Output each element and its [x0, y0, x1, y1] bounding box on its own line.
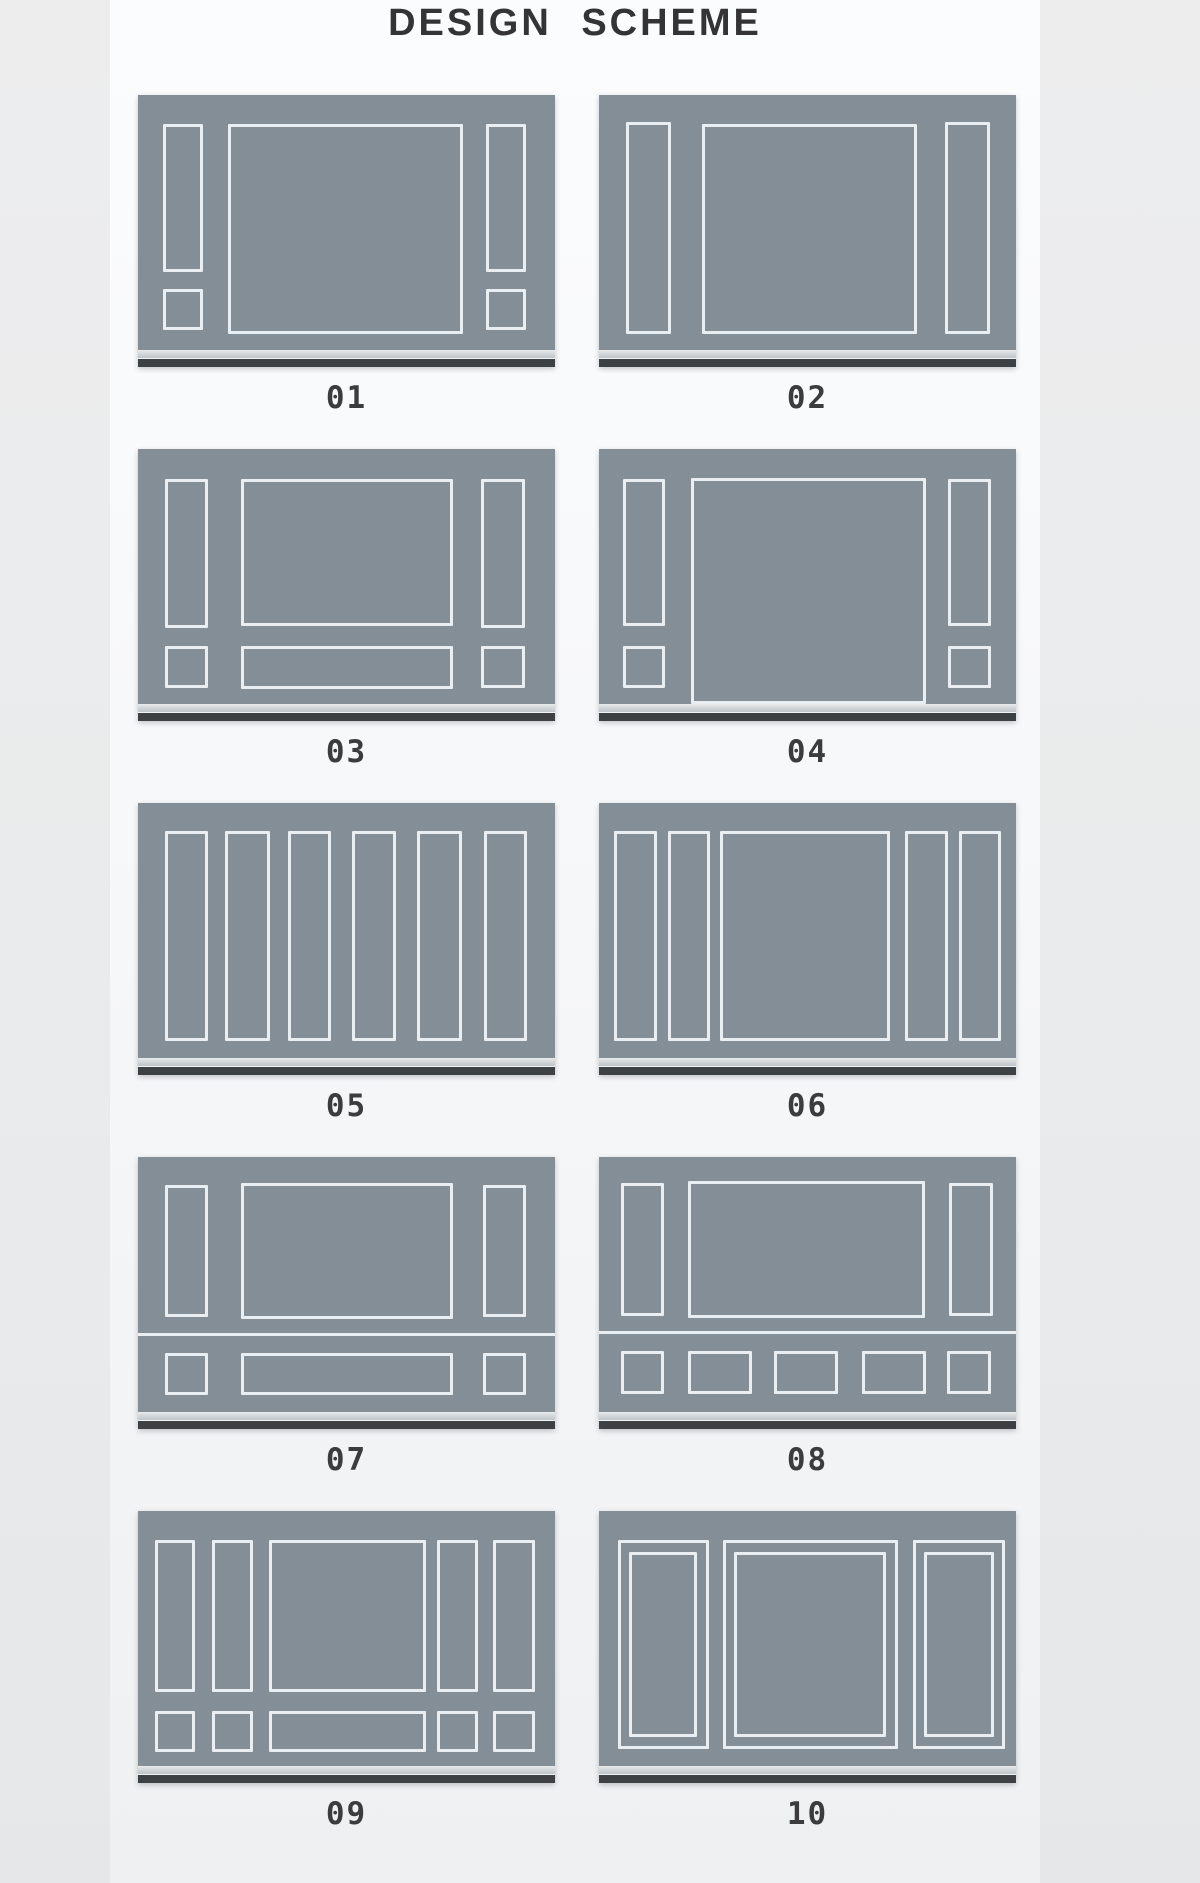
- molding-rect: [481, 646, 525, 688]
- molding-rect: [948, 479, 991, 626]
- molding-rect: [481, 479, 525, 628]
- molding-rect: [212, 1711, 253, 1752]
- scheme-card: 05: [138, 803, 555, 1157]
- molding-rect: [288, 831, 331, 1041]
- molding-rect: [486, 289, 526, 330]
- baseboard-dark: [599, 358, 1016, 367]
- baseboard-light: [138, 1412, 555, 1420]
- baseboard-dark: [599, 1420, 1016, 1429]
- scheme-label: 05: [138, 1088, 555, 1124]
- molding-rect: [163, 124, 203, 272]
- molding-rect: [241, 479, 453, 626]
- wall-block: [599, 1157, 1016, 1429]
- molding-rect: [668, 831, 711, 1041]
- molding-rect: [688, 1181, 925, 1317]
- scheme-card: 06: [599, 803, 1016, 1157]
- baseboard-light: [138, 1766, 555, 1774]
- wall-block: [138, 449, 555, 721]
- baseboard-dark: [138, 712, 555, 721]
- scheme-label: 01: [138, 380, 555, 416]
- wall-preview: [138, 449, 555, 704]
- baseboard-light: [599, 1766, 1016, 1774]
- scheme-card: 08: [599, 1157, 1016, 1511]
- molding-rect: [720, 831, 890, 1041]
- baseboard-dark: [138, 1420, 555, 1429]
- molding-rect: [484, 831, 527, 1041]
- molding-rect: [924, 1552, 994, 1737]
- molding-rect: [165, 646, 208, 688]
- molding-rect: [241, 646, 453, 689]
- chair-rail: [599, 1331, 1016, 1334]
- baseboard-dark: [138, 1774, 555, 1783]
- molding-rect: [155, 1711, 195, 1752]
- wall-preview: [138, 1157, 555, 1412]
- molding-rect: [621, 1351, 664, 1394]
- molding-rect: [947, 1351, 990, 1394]
- scheme-label: 07: [138, 1442, 555, 1478]
- molding-rect: [623, 479, 665, 626]
- chair-rail: [138, 1333, 555, 1336]
- molding-rect: [269, 1540, 425, 1691]
- baseboard-dark: [138, 1066, 555, 1075]
- wall-block: [138, 95, 555, 367]
- baseboard-light: [138, 350, 555, 358]
- molding-rect: [949, 1183, 992, 1316]
- molding-rect: [165, 479, 208, 628]
- wall-block: [599, 803, 1016, 1075]
- molding-rect: [417, 831, 462, 1041]
- molding-rect: [691, 478, 926, 704]
- scheme-card: 07: [138, 1157, 555, 1511]
- wall-block: [599, 95, 1016, 367]
- wall-block: [599, 1511, 1016, 1783]
- baseboard-light: [599, 1058, 1016, 1066]
- molding-rect: [614, 831, 657, 1041]
- wall-preview: [138, 803, 555, 1058]
- wall-block: [138, 1511, 555, 1783]
- scheme-card: 02: [599, 95, 1016, 449]
- wall-block: [138, 803, 555, 1075]
- molding-rect: [241, 1183, 453, 1319]
- scheme-label: 10: [599, 1796, 1016, 1832]
- molding-rect: [212, 1540, 253, 1691]
- baseboard-dark: [599, 1066, 1016, 1075]
- wall-preview: [599, 1157, 1016, 1412]
- page-title: DESIGN SCHEME: [110, 2, 1040, 45]
- molding-rect: [945, 122, 990, 334]
- baseboard-dark: [138, 358, 555, 367]
- molding-rect: [959, 831, 1001, 1041]
- scheme-label: 06: [599, 1088, 1016, 1124]
- molding-rect: [225, 831, 270, 1041]
- molding-rect: [483, 1353, 526, 1395]
- molding-rect: [688, 1351, 753, 1394]
- molding-rect: [483, 1185, 526, 1317]
- wall-block: [599, 449, 1016, 721]
- molding-rect: [702, 124, 916, 334]
- scheme-card: 09: [138, 1511, 555, 1865]
- molding-rect: [163, 289, 203, 330]
- molding-rect: [774, 1351, 839, 1394]
- molding-rect: [165, 831, 208, 1041]
- scheme-label: 03: [138, 734, 555, 770]
- baseboard-dark: [599, 712, 1016, 721]
- molding-rect: [165, 1353, 208, 1395]
- molding-rect: [629, 1552, 697, 1737]
- molding-rect: [905, 831, 948, 1041]
- molding-rect: [165, 1185, 208, 1317]
- scheme-card: 10: [599, 1511, 1016, 1865]
- molding-rect: [437, 1540, 479, 1691]
- wall-preview: [138, 95, 555, 350]
- content-column: DESIGN SCHEME 01020304050607080910: [110, 0, 1040, 1883]
- baseboard-dark: [599, 1774, 1016, 1783]
- molding-rect: [626, 122, 671, 334]
- wall-preview: [599, 803, 1016, 1058]
- molding-rect: [437, 1711, 479, 1752]
- molding-rect: [493, 1711, 535, 1752]
- wall-preview: [138, 1511, 555, 1766]
- molding-rect: [352, 831, 396, 1041]
- scheme-card: 01: [138, 95, 555, 449]
- scheme-grid: 01020304050607080910: [110, 95, 1040, 1865]
- page: DESIGN SCHEME 01020304050607080910: [0, 0, 1200, 1883]
- wall-preview: [599, 95, 1016, 350]
- molding-rect: [486, 124, 526, 272]
- scheme-label: 09: [138, 1796, 555, 1832]
- baseboard-light: [599, 704, 1016, 712]
- scheme-card: 03: [138, 449, 555, 803]
- scheme-label: 08: [599, 1442, 1016, 1478]
- baseboard-light: [138, 1058, 555, 1066]
- wall-preview: [599, 1511, 1016, 1766]
- molding-rect: [623, 646, 665, 688]
- wall-preview: [599, 449, 1016, 704]
- molding-rect: [948, 646, 991, 688]
- baseboard-light: [599, 350, 1016, 358]
- molding-rect: [155, 1540, 195, 1691]
- scheme-label: 04: [599, 734, 1016, 770]
- molding-rect: [269, 1711, 425, 1752]
- baseboard-light: [599, 1412, 1016, 1420]
- scheme-label: 02: [599, 380, 1016, 416]
- molding-rect: [621, 1183, 664, 1316]
- molding-rect: [241, 1353, 453, 1395]
- molding-rect: [734, 1552, 886, 1737]
- molding-rect: [228, 124, 463, 334]
- molding-rect: [493, 1540, 535, 1691]
- baseboard-light: [138, 704, 555, 712]
- scheme-card: 04: [599, 449, 1016, 803]
- wall-block: [138, 1157, 555, 1429]
- molding-rect: [862, 1351, 926, 1394]
